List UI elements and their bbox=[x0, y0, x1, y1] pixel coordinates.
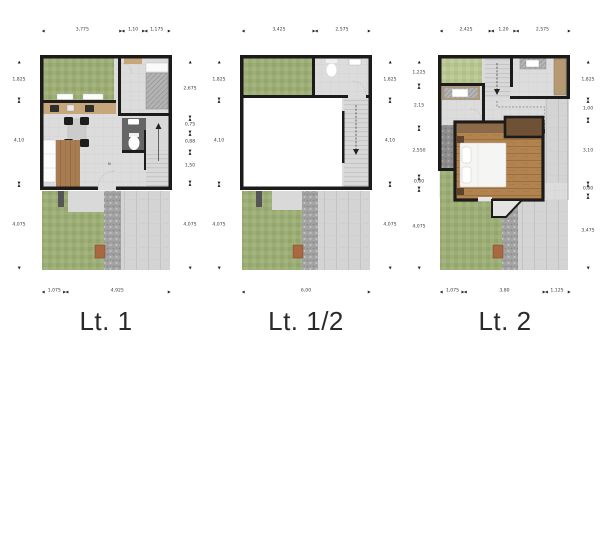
dim-label: 4,10 bbox=[214, 140, 224, 145]
dim-label: 1,175 bbox=[150, 29, 163, 34]
carport-void bbox=[545, 99, 568, 183]
dim-tick-marker: ▶◀ bbox=[217, 97, 221, 102]
mezzanine-floor bbox=[240, 57, 372, 271]
dim-start-arrow: ◀ bbox=[42, 290, 44, 294]
plan-label-lt1-2: Lt. 1/2 bbox=[240, 306, 372, 337]
dim-tick-marker: ▶◀ bbox=[119, 29, 124, 33]
dim-label: 3,80 bbox=[499, 290, 509, 295]
kitchen bbox=[40, 100, 116, 114]
dim-label: 4,10 bbox=[385, 140, 395, 145]
dim-label: 4,075 bbox=[212, 224, 225, 229]
dim-end-arrow: ▶ bbox=[168, 290, 170, 294]
plan-label-lt1: Lt. 1 bbox=[40, 306, 172, 337]
dim-tick-marker: ▶◀ bbox=[489, 29, 494, 33]
courtyard-garden bbox=[43, 58, 114, 100]
dim-tick-marker: ▶◀ bbox=[388, 182, 392, 187]
dim-label: 4,925 bbox=[111, 290, 124, 295]
dim-label: 1,225 bbox=[412, 72, 425, 77]
dim-start-arrow: ▲ bbox=[218, 60, 220, 64]
driveway bbox=[121, 191, 170, 270]
dim-start-arrow: ◀ bbox=[440, 290, 442, 294]
sofa bbox=[43, 140, 56, 182]
dim-end-arrow: ▶ bbox=[368, 290, 370, 294]
dim-tick-marker: ▶◀ bbox=[188, 131, 192, 136]
dim-label: 0,60 bbox=[414, 181, 424, 186]
dim-label: 4,075 bbox=[183, 223, 196, 228]
stairs bbox=[485, 57, 513, 98]
front-yard bbox=[42, 191, 170, 270]
dim-label: 4,10 bbox=[14, 140, 24, 145]
landing bbox=[545, 183, 568, 200]
dim-tick-marker: ▶◀ bbox=[17, 182, 21, 187]
driveway bbox=[518, 200, 568, 270]
dim-tick-marker: ▶◀ bbox=[417, 186, 421, 191]
dim-label: 3,475 bbox=[581, 230, 594, 235]
dim-start-arrow: ◀ bbox=[242, 29, 244, 33]
dim-tick-marker: ▶◀ bbox=[188, 181, 192, 186]
doormat bbox=[293, 245, 303, 258]
front-yard bbox=[242, 191, 370, 270]
dim-label: 6,00 bbox=[301, 290, 311, 295]
entry-opening bbox=[98, 186, 116, 190]
living-area bbox=[43, 140, 81, 188]
sink bbox=[349, 59, 361, 65]
dim-start-arrow: ◀ bbox=[440, 29, 442, 33]
dim-tick-marker: ▶◀ bbox=[142, 29, 147, 33]
dim-end-arrow: ▼ bbox=[218, 266, 220, 270]
dim-tick-marker: ▶◀ bbox=[313, 29, 318, 33]
dim-tick-marker: ▶◀ bbox=[586, 118, 590, 123]
dim-tick-marker: ▶◀ bbox=[217, 182, 221, 187]
toilet bbox=[129, 136, 140, 150]
dim-tick-marker: ▶◀ bbox=[188, 149, 192, 154]
dim-label: 2,675 bbox=[183, 88, 196, 93]
closet bbox=[505, 117, 543, 137]
nightstand bbox=[457, 188, 464, 195]
doormat bbox=[493, 245, 503, 258]
dim-label: 3,775 bbox=[76, 29, 89, 34]
terrace bbox=[68, 191, 104, 212]
garden-wall bbox=[58, 191, 64, 207]
dim-label: 1,125 bbox=[550, 290, 563, 295]
floor-plan-lt1-2 bbox=[240, 55, 372, 272]
upper-floor bbox=[438, 55, 570, 270]
plan-label-lt2: Lt. 2 bbox=[438, 306, 572, 337]
floor-plan-lt1: N bbox=[40, 55, 172, 272]
door-opening bbox=[478, 197, 492, 202]
dim-start-arrow: ▲ bbox=[389, 60, 391, 64]
dim-tick-marker: ▶◀ bbox=[586, 97, 590, 102]
dim-start-arrow: ▲ bbox=[18, 60, 20, 64]
dim-end-arrow: ▼ bbox=[18, 266, 20, 270]
dim-start-arrow: ▲ bbox=[587, 60, 589, 64]
dim-tick-marker: ▶◀ bbox=[462, 290, 467, 294]
dim-tick-marker: ▶◀ bbox=[586, 182, 590, 187]
garden-wall bbox=[256, 191, 262, 207]
dim-tick-marker: ▶◀ bbox=[188, 115, 192, 120]
stair-railing bbox=[144, 130, 146, 170]
ground-floor: N bbox=[40, 57, 172, 271]
wood-deck bbox=[56, 140, 80, 188]
dim-start-arrow: ◀ bbox=[242, 290, 244, 294]
pillow bbox=[462, 147, 471, 163]
roof-garden bbox=[243, 58, 312, 96]
wardrobe-wood bbox=[554, 59, 566, 95]
floor-plan-sheet: N bbox=[0, 0, 600, 538]
dim-label: 2,550 bbox=[412, 150, 425, 155]
dim-label: 1,825 bbox=[12, 79, 25, 84]
stairs bbox=[342, 98, 368, 188]
dim-tick-marker: ▶◀ bbox=[417, 83, 421, 88]
balcony bbox=[440, 125, 455, 170]
dim-start-arrow: ▲ bbox=[418, 60, 420, 64]
dim-start-arrow: ◀ bbox=[42, 29, 44, 33]
floor-plan-lt2 bbox=[438, 55, 572, 272]
north-mark: N bbox=[108, 162, 111, 166]
kitchen-sink bbox=[67, 105, 74, 111]
dim-label: 1,00 bbox=[583, 108, 593, 113]
dim-label: 1,075 bbox=[446, 290, 459, 295]
bench bbox=[124, 58, 142, 64]
void bbox=[243, 98, 342, 188]
dim-label: 1,075 bbox=[48, 290, 61, 295]
dim-tick-marker: ▶◀ bbox=[388, 97, 392, 102]
dim-label: 1,825 bbox=[581, 79, 594, 84]
stairs bbox=[144, 117, 170, 188]
wardrobe bbox=[146, 73, 168, 109]
dim-end-arrow: ▼ bbox=[189, 266, 191, 270]
dim-label: 0,75 bbox=[185, 123, 195, 128]
sink bbox=[128, 119, 139, 125]
nightstand bbox=[457, 136, 464, 143]
dim-end-arrow: ▼ bbox=[587, 266, 589, 270]
dim-tick-marker: ▶◀ bbox=[513, 29, 518, 33]
dim-tick-marker: ▶◀ bbox=[63, 290, 68, 294]
dim-tick-marker: ▶◀ bbox=[586, 194, 590, 199]
dim-end-arrow: ▶ bbox=[568, 290, 570, 294]
dim-label: 4,075 bbox=[412, 226, 425, 231]
pillow bbox=[462, 167, 471, 183]
dim-label: 3,10 bbox=[583, 150, 593, 155]
toilet bbox=[327, 64, 337, 77]
roof-garden bbox=[441, 58, 482, 83]
dim-label: 4,075 bbox=[12, 224, 25, 229]
dim-end-arrow: ▼ bbox=[418, 266, 420, 270]
dim-start-arrow: ▲ bbox=[189, 60, 191, 64]
stepping-path bbox=[302, 191, 318, 270]
dim-label: 1,825 bbox=[383, 79, 396, 84]
terrace bbox=[272, 191, 302, 210]
dim-label: 2,575 bbox=[536, 29, 549, 34]
dim-label: 4,075 bbox=[383, 224, 396, 229]
dim-label: 2,15 bbox=[414, 104, 424, 109]
doormat bbox=[95, 245, 105, 258]
dim-tick-marker: ▶◀ bbox=[417, 125, 421, 130]
dim-end-arrow: ▶ bbox=[368, 29, 370, 33]
dim-tick-marker: ▶◀ bbox=[417, 175, 421, 180]
dim-end-arrow: ▶ bbox=[168, 29, 170, 33]
headboard-shelf bbox=[457, 124, 506, 133]
dim-label: 1,50 bbox=[185, 165, 195, 170]
dim-label: 0,60 bbox=[583, 188, 593, 193]
dim-tick-marker: ▶◀ bbox=[17, 97, 21, 102]
dim-end-arrow: ▼ bbox=[389, 266, 391, 270]
stepping-path bbox=[104, 191, 121, 270]
dim-label: 2,575 bbox=[335, 29, 348, 34]
dim-label: 1,10 bbox=[128, 29, 138, 34]
dim-label: 3,425 bbox=[272, 29, 285, 34]
dim-label: 1,825 bbox=[212, 79, 225, 84]
cabinet bbox=[146, 63, 168, 72]
dim-end-arrow: ▶ bbox=[568, 29, 570, 33]
dim-label: 1,20 bbox=[498, 29, 508, 34]
dim-tick-marker: ▶◀ bbox=[543, 290, 548, 294]
dim-label: 0,88 bbox=[185, 140, 195, 145]
stair-railing bbox=[342, 111, 345, 163]
stove bbox=[50, 105, 59, 112]
dim-label: 2,425 bbox=[459, 29, 472, 34]
driveway bbox=[318, 191, 370, 270]
